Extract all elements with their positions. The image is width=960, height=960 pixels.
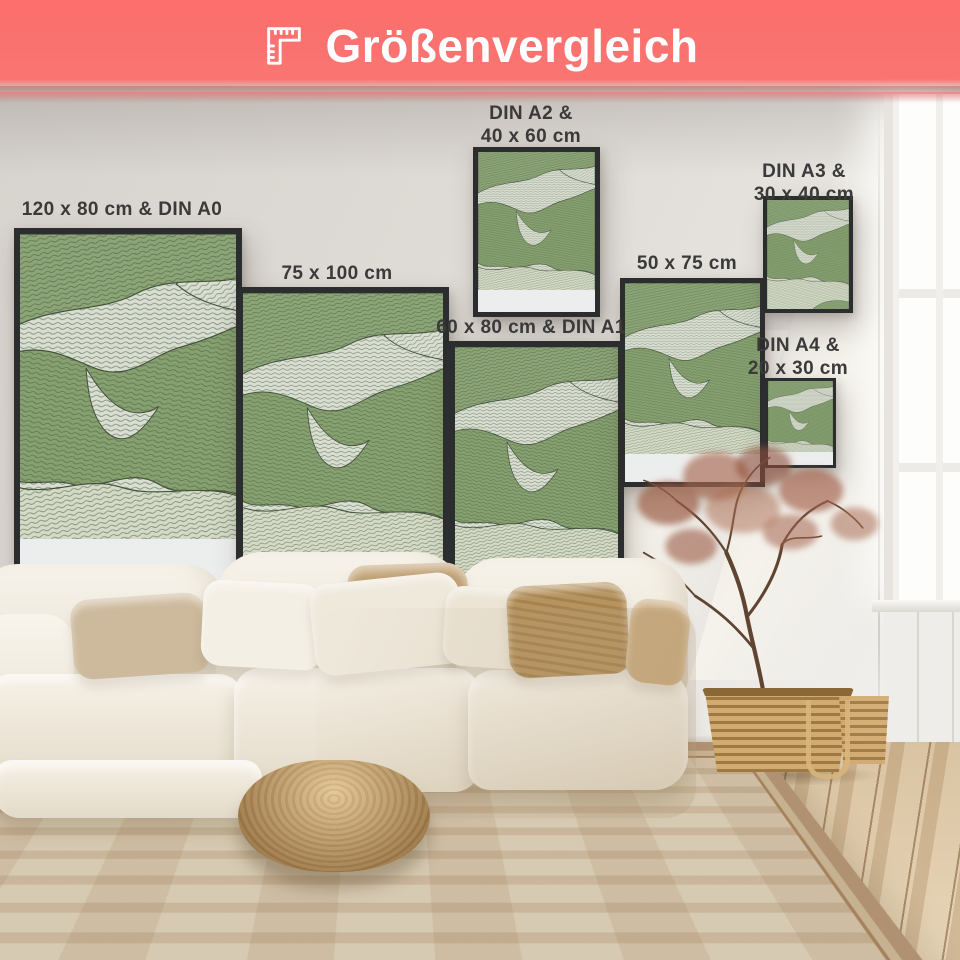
poster-din-a3-30x40 xyxy=(763,196,853,313)
poster-label-text: 30 x 40 cm xyxy=(748,183,860,206)
poster-label-text: DIN A2 & xyxy=(451,102,611,125)
poster-label-din-a2-40x60: DIN A2 & 40 x 60 cm xyxy=(451,102,611,148)
poster-label-din-a4-20x30: DIN A4 & 20 x 30 cm xyxy=(740,334,856,380)
wavy-line-artwork xyxy=(478,152,595,312)
poster-label-75x100: 75 x 100 cm xyxy=(237,262,437,285)
throw-pillow-beige xyxy=(69,591,210,680)
sofa-chaise-cushion xyxy=(0,760,262,818)
artwork-bottom-margin xyxy=(478,290,595,312)
rattan-pouf xyxy=(238,760,430,872)
poster-label-50x75: 50 x 75 cm xyxy=(614,252,760,275)
poster-label-text: 60 x 80 cm & DIN A1 xyxy=(436,317,626,338)
throw-pillow-white xyxy=(200,579,324,671)
poster-label-text: DIN A4 & xyxy=(740,334,856,357)
poster-label-text: DIN A3 & xyxy=(748,160,860,183)
basket-handle xyxy=(806,700,850,779)
size-comparison-graphic: 120 x 80 cm & DIN A0 75 x 100 cm DIN A2 … xyxy=(0,0,960,960)
wavy-line-artwork xyxy=(767,200,849,309)
poster-label-text: 75 x 100 cm xyxy=(281,263,392,284)
poster-label-din-a3-30x40: DIN A3 & 30 x 40 cm xyxy=(748,160,860,206)
poster-din-a2-40x60 xyxy=(473,147,600,317)
window-mullion xyxy=(936,94,943,606)
window-crossbar xyxy=(899,463,960,472)
poster-label-text: 40 x 60 cm xyxy=(451,125,611,148)
window-crossbar xyxy=(899,289,960,298)
page-title: Größenvergleich xyxy=(325,19,698,73)
wavy-line-artwork xyxy=(20,234,236,589)
poster-label-120x80-din-a0: 120 x 80 cm & DIN A0 xyxy=(4,198,240,221)
title-banner: Größenvergleich xyxy=(0,0,960,92)
banner-fade xyxy=(0,92,960,102)
corner-ruler-icon xyxy=(261,21,307,67)
poster-label-text: 120 x 80 cm & DIN A0 xyxy=(22,199,223,220)
basket-rim xyxy=(702,688,854,696)
poster-label-60x80-din-a1: 60 x 80 cm & DIN A1 xyxy=(425,316,637,339)
poster-120x80-din-a0 xyxy=(14,228,242,595)
poster-label-text: 20 x 30 cm xyxy=(740,357,856,380)
poster-label-text: 50 x 75 cm xyxy=(637,253,737,274)
